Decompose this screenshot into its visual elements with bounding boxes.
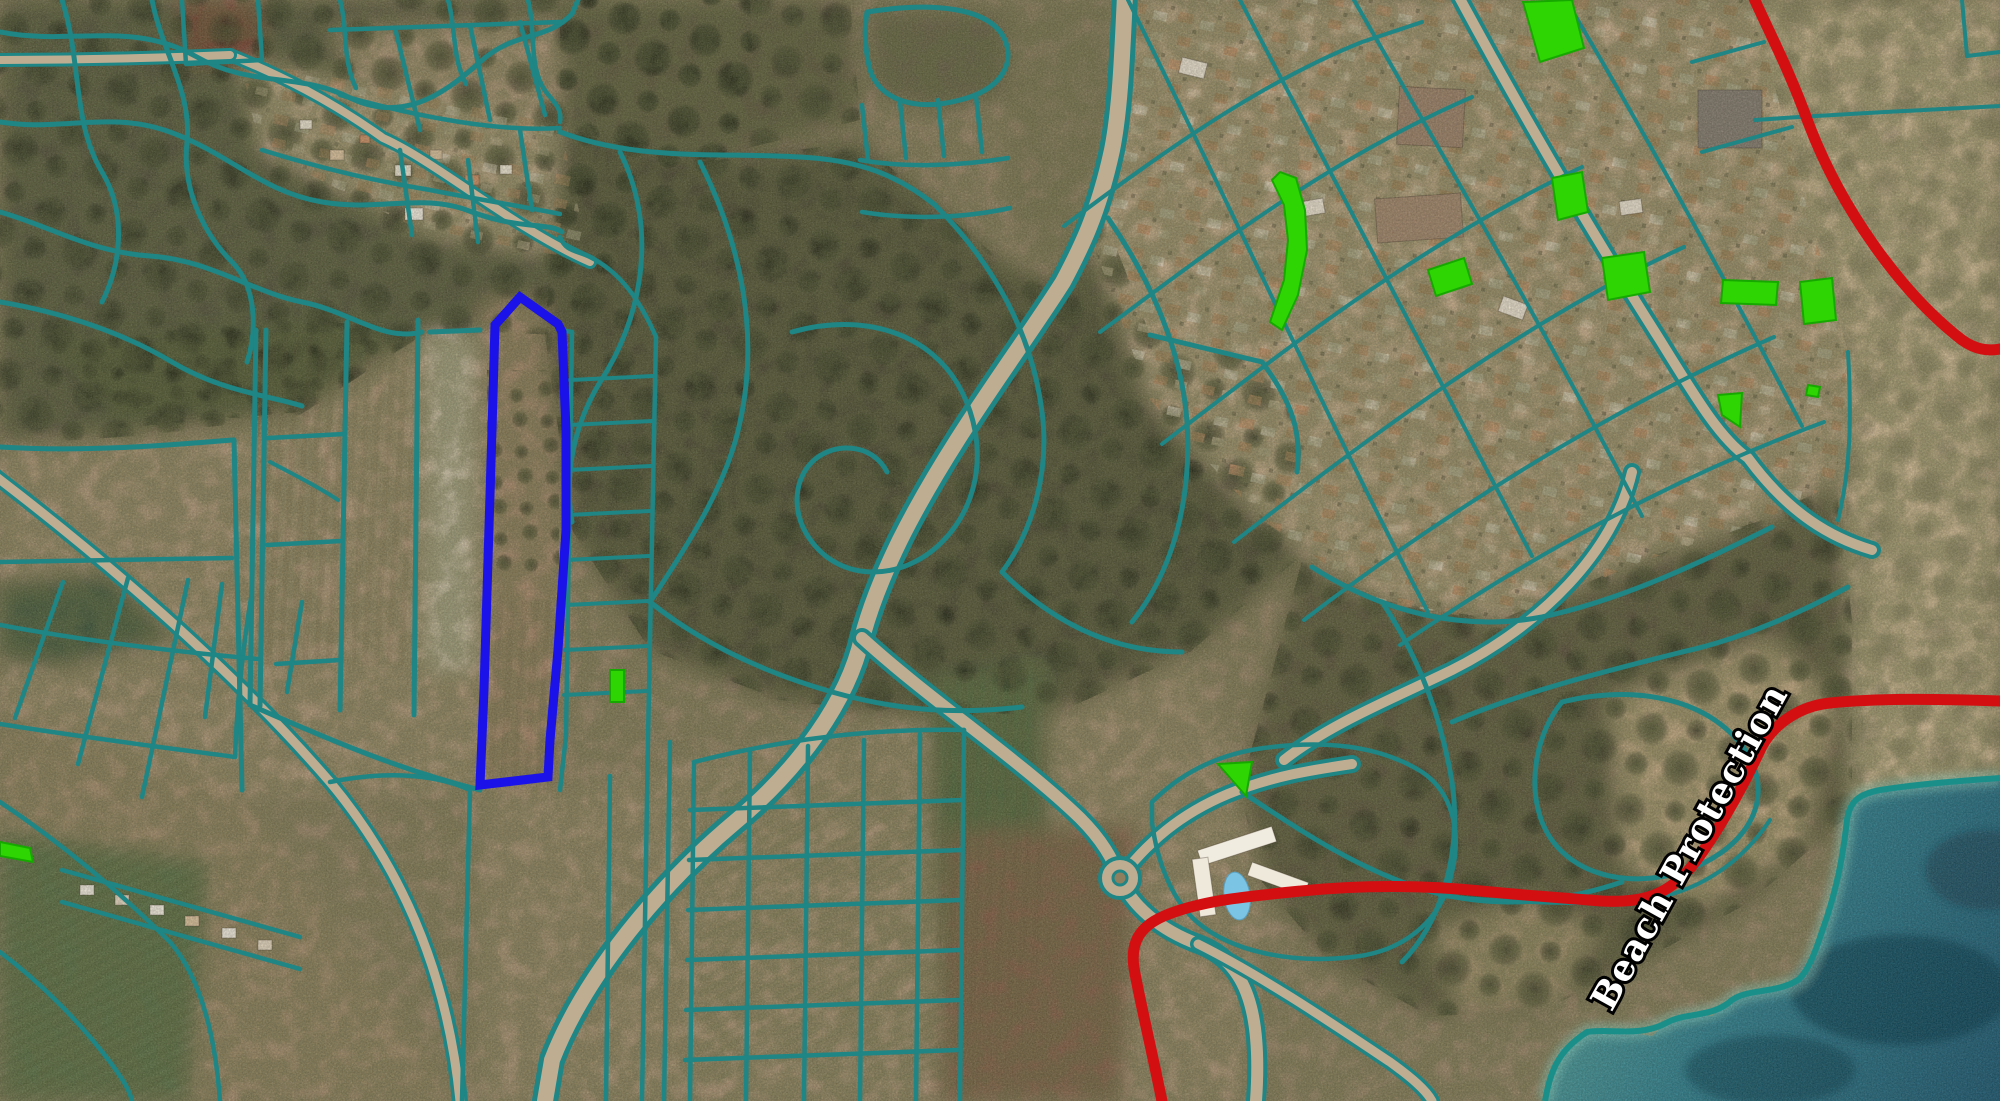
roundabout (1100, 858, 1140, 898)
green-parcel[interactable] (1552, 172, 1588, 220)
green-parcel[interactable] (1806, 385, 1820, 397)
green-parcel[interactable] (1800, 278, 1836, 324)
satellite-cadastral-map: Beach Protection (0, 0, 2000, 1101)
map-viewport[interactable]: Beach Protection (0, 0, 2000, 1101)
green-parcel[interactable] (1721, 280, 1778, 305)
green-parcel[interactable] (610, 670, 624, 702)
green-parcel[interactable] (1602, 252, 1650, 300)
